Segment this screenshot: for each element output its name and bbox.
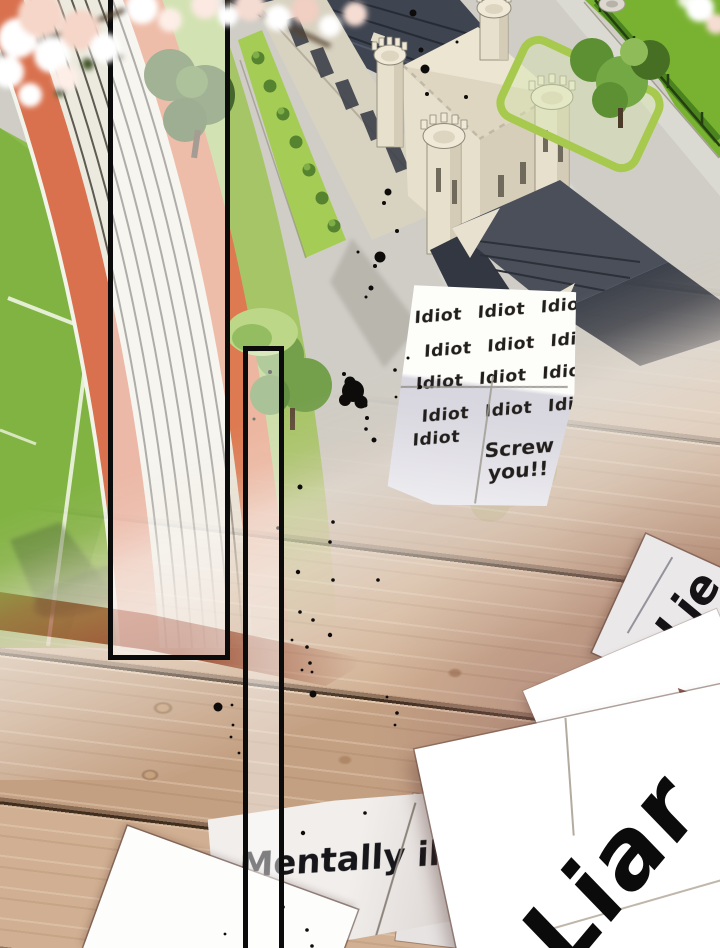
panel-bar-2 [243, 346, 284, 948]
liar-text: Liar [504, 748, 720, 948]
idiot-note-paper: Idiot Idiot Idiot Idiot Idiot Idiot Idio… [386, 280, 581, 514]
idiot-row: Idiot Idiot Idiot [424, 328, 599, 362]
idiot-row: Idiot Idiot Idiot [414, 294, 589, 328]
comic-panel: Idiot Idiot Idiot Idiot Idiot Idiot Idio… [0, 0, 720, 948]
panel-bar-1 [108, 0, 230, 660]
screw-you-text: Screw you!! [474, 433, 564, 486]
idiot-row: Idiot [412, 427, 461, 451]
idiot-row: Idiot Idiot Idiot [415, 360, 590, 394]
paper-crease [398, 386, 567, 388]
paper-crease [564, 718, 574, 836]
